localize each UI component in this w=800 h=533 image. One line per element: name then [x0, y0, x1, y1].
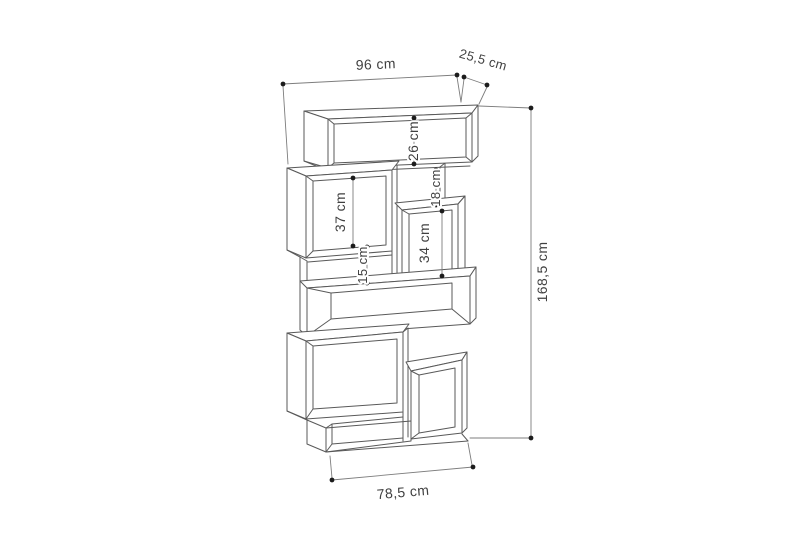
bookshelf-wireframe [287, 105, 478, 452]
dimension-label-left-compartment: 37 cm [332, 192, 348, 232]
dimension-label-small-gap: 18 cm [428, 169, 443, 206]
diagram-canvas: 96 cm 25,5 cm 26 cm 37 cm 18 cm 34 cm 15… [0, 0, 800, 533]
page: 96 cm 25,5 cm 26 cm 37 cm 18 cm 34 cm 15… [0, 0, 800, 533]
dimension-label-height: 168,5 cm [534, 242, 550, 303]
dimension-label-middle-gap: 15 cm [355, 246, 370, 283]
right-cube-module [406, 352, 468, 441]
dimension-label-right-compartment: 34 cm [416, 223, 432, 263]
shelf-module-row4 [287, 324, 409, 420]
middle-box [300, 257, 476, 336]
dimension-label-top-compartment: 26 cm [405, 121, 421, 161]
dimension-label-depth: 25,5 cm [458, 46, 509, 74]
dimension-label-width: 96 cm [355, 55, 396, 73]
bookshelf-dimension-diagram: 96 cm 25,5 cm 26 cm 37 cm 18 cm 34 cm 15… [0, 0, 800, 533]
dimension-label-base-width: 78,5 cm [376, 482, 430, 503]
